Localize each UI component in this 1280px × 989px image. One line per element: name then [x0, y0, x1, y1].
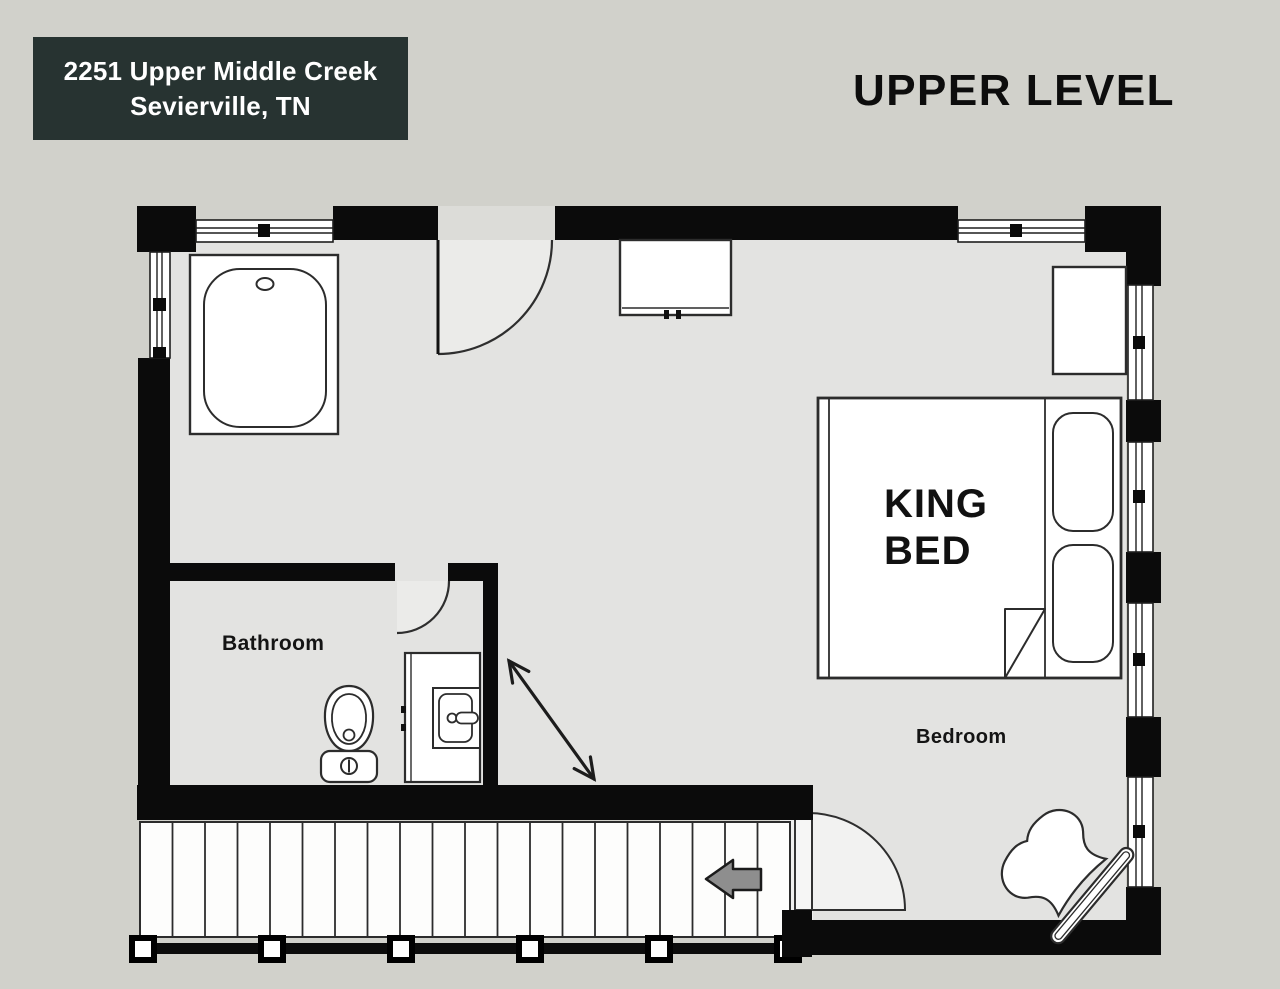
wall-bedroom-door-jamb — [782, 910, 812, 957]
wall-corner-bottom-right — [1126, 887, 1161, 955]
window-top-left — [196, 220, 333, 242]
window-right-4 — [1128, 777, 1153, 887]
floor-plan-page: 2251 Upper Middle Creek Sevierville, TN … — [0, 0, 1280, 989]
vanity-sink — [401, 653, 480, 782]
bedroom-label: Bedroom — [916, 726, 1007, 749]
bedroom-door-leaf — [795, 812, 812, 910]
wall-bathroom-top-a — [150, 563, 395, 581]
dresser — [620, 240, 731, 319]
staircase — [140, 822, 790, 937]
bathtub — [190, 255, 338, 434]
plan-title: UPPER LEVEL — [818, 66, 1210, 116]
entry-threshold — [438, 206, 555, 240]
king-bed-label: KING BED — [884, 481, 1034, 575]
wall-bathroom-top-b — [448, 563, 498, 581]
window-right-2 — [1128, 442, 1153, 552]
wall-bottom-bedroom — [812, 920, 1161, 955]
pillow — [1053, 413, 1113, 531]
wall-bathroom-right — [483, 581, 498, 787]
address-line-1: 2251 Upper Middle Creek — [64, 54, 378, 88]
nightstand — [1053, 267, 1126, 374]
window-left — [150, 252, 170, 358]
window-top-right — [958, 220, 1085, 242]
wall-corner-top-left — [137, 206, 196, 252]
bathroom-label: Bathroom — [222, 632, 324, 656]
toilet-flush — [344, 730, 355, 741]
wall-right-block-3 — [1126, 717, 1161, 777]
wall-right-top-stub — [1126, 250, 1161, 286]
toilet — [321, 686, 377, 782]
vanity-hinge — [401, 706, 406, 713]
window-right-1 — [1128, 285, 1153, 400]
wall-top-b — [555, 206, 958, 240]
dresser-knob — [664, 310, 669, 319]
vanity-hinge — [401, 724, 406, 731]
pillow — [1053, 545, 1113, 662]
dresser-knob — [676, 310, 681, 319]
wall-left — [138, 358, 170, 820]
wall-right-block-2 — [1126, 552, 1161, 603]
wall-bottom-hall — [137, 785, 813, 820]
wall-top-a — [333, 206, 438, 240]
wall-corner-top-right — [1085, 206, 1161, 252]
sink-faucet-handle — [456, 713, 478, 724]
railing — [131, 938, 799, 960]
wall-right-block-1 — [1126, 400, 1161, 442]
address-card: 2251 Upper Middle Creek Sevierville, TN — [33, 37, 408, 140]
window-right-3 — [1128, 603, 1153, 717]
floor-plan-drawing — [0, 0, 1280, 989]
bathtub-faucet — [257, 278, 274, 290]
address-line-2: Sevierville, TN — [130, 89, 311, 123]
